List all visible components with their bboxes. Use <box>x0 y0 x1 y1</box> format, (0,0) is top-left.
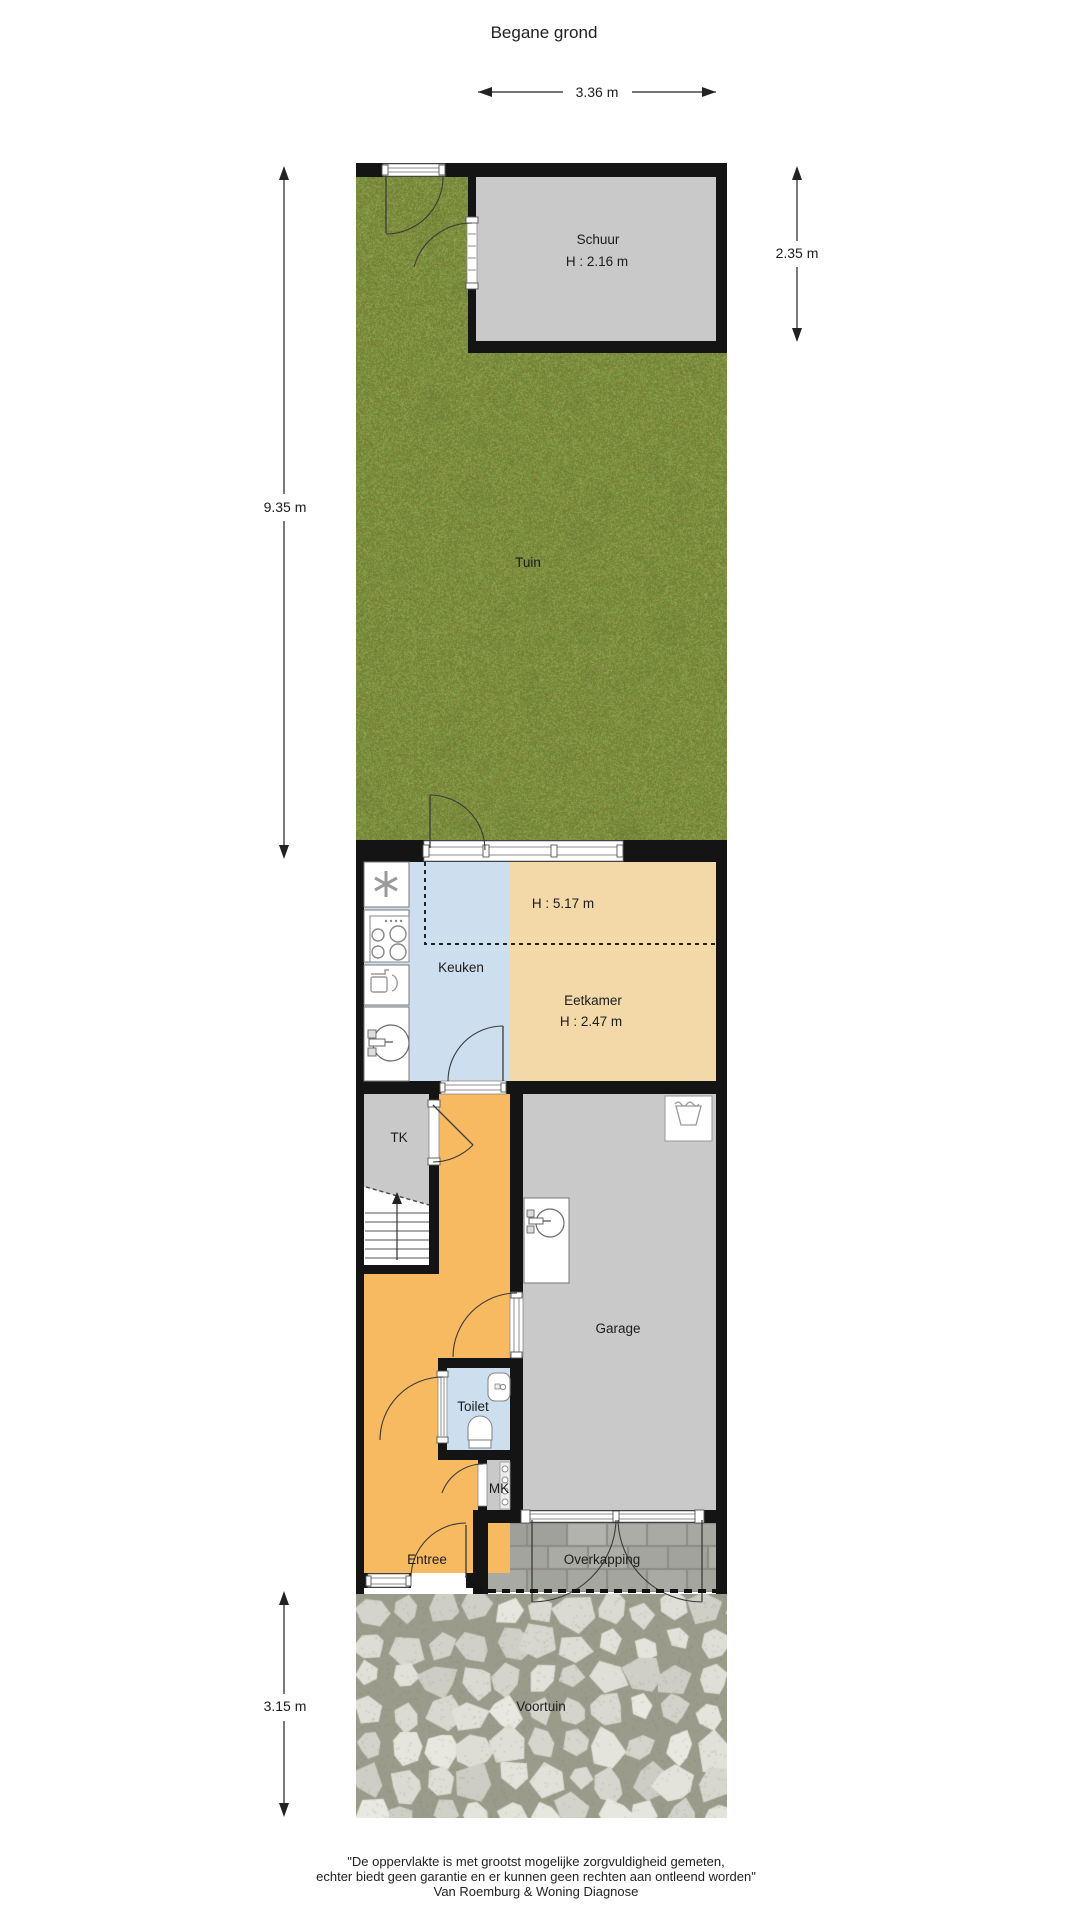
dimension-top-width: 3.36 m <box>478 84 716 100</box>
label-schuur: Schuur <box>577 232 620 247</box>
schuur-door <box>414 217 478 289</box>
footer-line-3: Van Roemburg & Woning Diagnose <box>434 1884 639 1899</box>
label-garage: Garage <box>595 1321 640 1336</box>
label-toilet: Toilet <box>457 1399 489 1414</box>
label-tuin: Tuin <box>515 555 541 570</box>
label-mk: MK <box>489 1481 509 1496</box>
dimension-schuur-depth: 2.35 m <box>776 166 819 342</box>
dimension-tuin-depth: 9.35 m <box>264 166 307 859</box>
dim-top-label: 3.36 m <box>576 84 619 100</box>
floorplan-page: 3.36 m 2.35 m 9.35 m 3.15 m Begane grond… <box>0 0 1080 1920</box>
label-entree: Entree <box>407 1552 447 1567</box>
garage-tap <box>529 1218 543 1224</box>
sink-tap <box>369 1039 385 1046</box>
label-tk: TK <box>390 1130 407 1145</box>
stove-icon <box>364 910 409 962</box>
entree-window <box>366 1574 411 1587</box>
keuken-garden-window <box>423 795 623 861</box>
kitchen-fixtures <box>364 862 409 1081</box>
label-void-height: H : 5.17 m <box>532 896 594 911</box>
footer-line-2: echter biedt geen garantie en er kunnen … <box>316 1869 756 1884</box>
sink-tap-handle <box>368 1030 376 1038</box>
room-eetkamer <box>510 862 716 1081</box>
label-eetkamer-height: H : 2.47 m <box>560 1014 622 1029</box>
label-voortuin: Voortuin <box>516 1699 566 1714</box>
room-garage <box>523 1094 716 1510</box>
room-entree <box>364 1274 439 1573</box>
dim-voortuin-label: 3.15 m <box>264 1698 307 1714</box>
page-title: Begane grond <box>491 23 598 42</box>
label-eetkamer: Eetkamer <box>564 993 622 1008</box>
label-overkapping: Overkapping <box>564 1552 641 1567</box>
room-fills <box>364 177 716 1573</box>
sink-tap-handle <box>368 1048 376 1056</box>
dim-tuin-label: 9.35 m <box>264 499 307 515</box>
floorplan-drawing: 3.36 m 2.35 m 9.35 m 3.15 m Begane grond… <box>0 0 1080 1920</box>
dimension-voortuin-depth: 3.15 m <box>264 1591 307 1817</box>
label-keuken: Keuken <box>438 960 484 975</box>
label-schuur-height: H : 2.16 m <box>566 254 628 269</box>
toilet-bowl <box>468 1416 492 1448</box>
garden-gate <box>382 164 445 234</box>
room-tk <box>364 1094 429 1205</box>
dim-schuur-label: 2.35 m <box>776 245 819 261</box>
footer-disclaimer: "De oppervlakte is met grootst mogelijke… <box>316 1854 756 1899</box>
footer-line-1: "De oppervlakte is met grootst mogelijke… <box>347 1854 724 1869</box>
